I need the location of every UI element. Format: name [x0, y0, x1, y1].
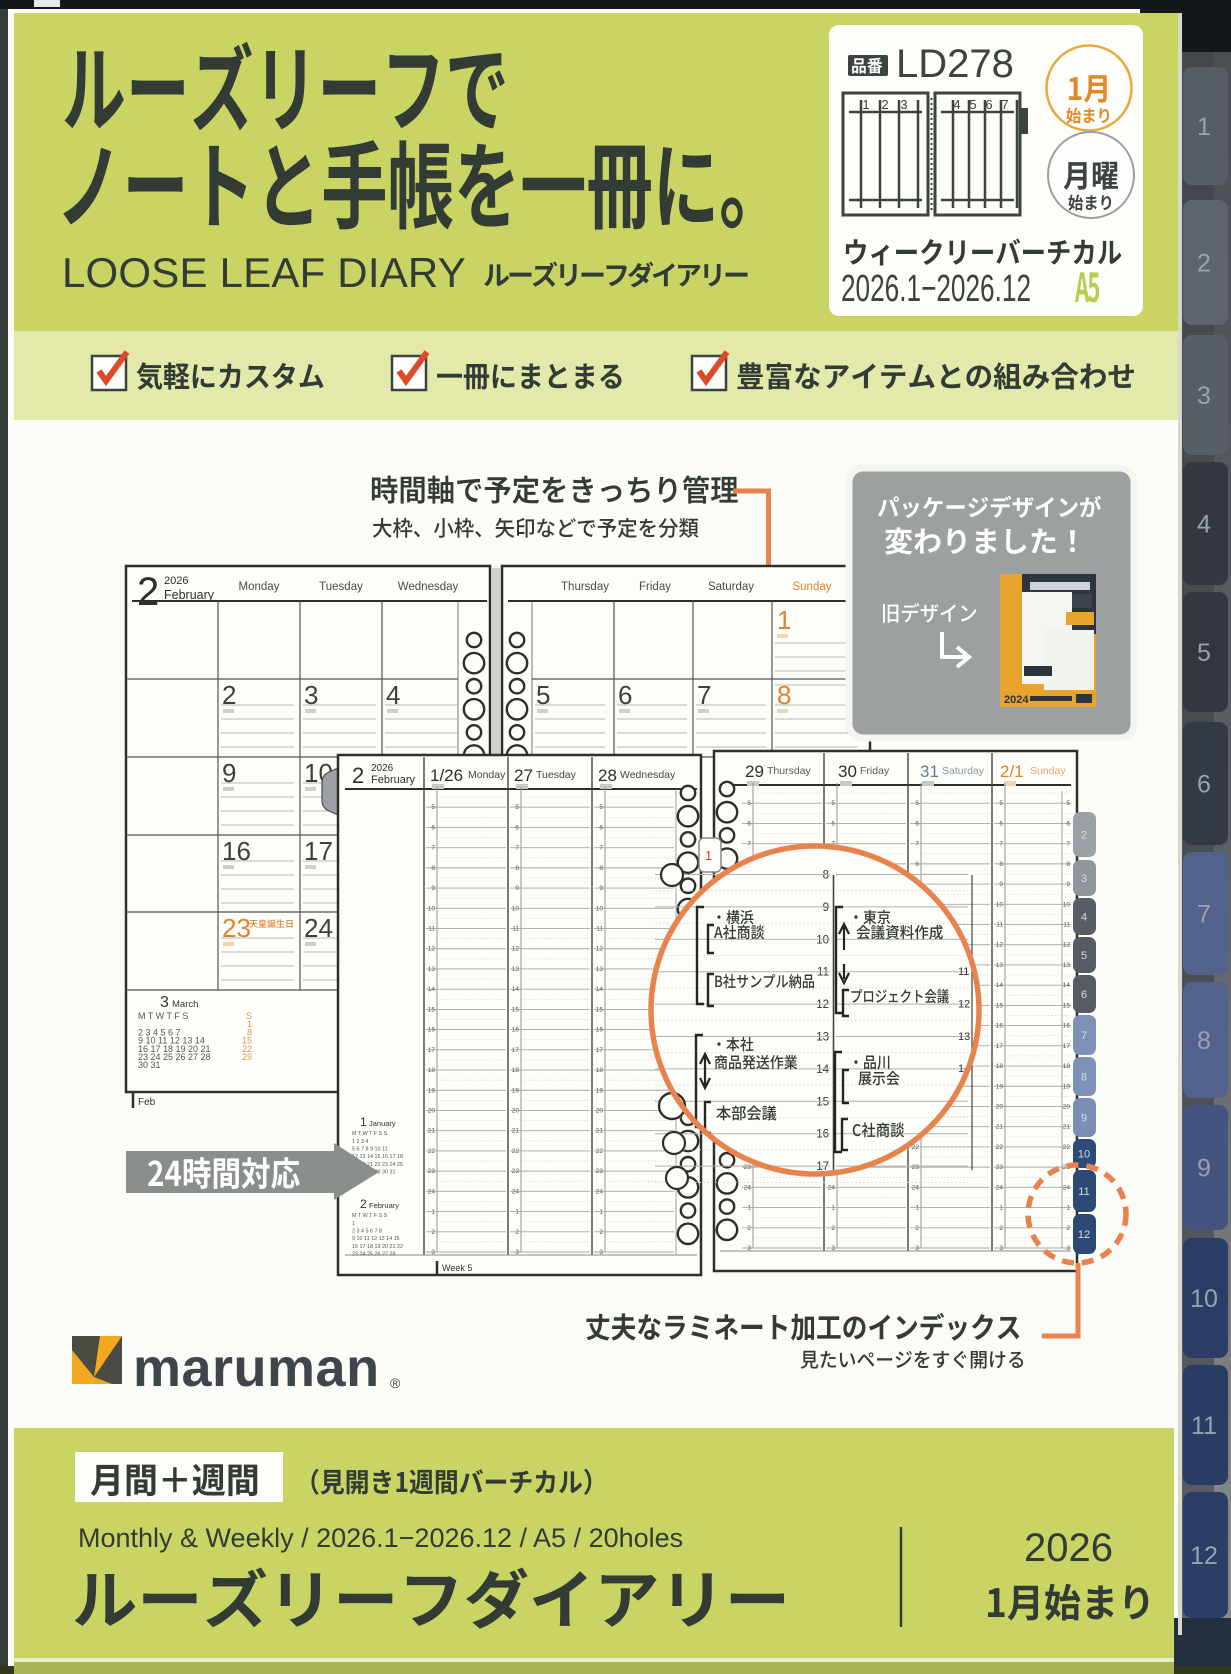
- svg-text:2: 2: [360, 1197, 367, 1211]
- svg-text:20: 20: [512, 1107, 520, 1114]
- svg-text:Sunday: Sunday: [1030, 765, 1066, 777]
- svg-text:5: 5: [999, 800, 1003, 807]
- svg-text:2: 2: [915, 1225, 919, 1232]
- svg-text:1: 1: [777, 605, 791, 635]
- svg-text:7: 7: [515, 845, 519, 852]
- svg-text:29: 29: [745, 762, 764, 781]
- svg-text:29: 29: [242, 1052, 252, 1062]
- svg-text:11: 11: [996, 922, 1003, 929]
- svg-text:21: 21: [596, 1128, 604, 1135]
- svg-text:9: 9: [599, 885, 603, 892]
- svg-text:10: 10: [1190, 1285, 1218, 1313]
- svg-text:13: 13: [596, 966, 604, 973]
- svg-text:13: 13: [512, 966, 520, 973]
- svg-text:7: 7: [747, 841, 751, 848]
- svg-text:22: 22: [1063, 1144, 1071, 1151]
- svg-text:8: 8: [599, 865, 603, 872]
- svg-text:2: 2: [1066, 1225, 1070, 1232]
- svg-text:5: 5: [1066, 800, 1070, 807]
- svg-text:3: 3: [515, 1249, 519, 1256]
- svg-text:11: 11: [428, 926, 435, 933]
- svg-text:24: 24: [428, 1188, 436, 1195]
- svg-text:11: 11: [817, 967, 829, 979]
- svg-text:Wednesday: Wednesday: [620, 769, 676, 781]
- svg-text:15: 15: [428, 1006, 436, 1013]
- svg-text:Monthly & Weekly / 2026.1−2026: Monthly & Weekly / 2026.1−2026.12 / A5 /…: [78, 1523, 683, 1553]
- svg-text:10: 10: [1078, 1149, 1090, 1161]
- svg-text:®: ®: [390, 1375, 401, 1391]
- svg-text:18: 18: [596, 1067, 604, 1074]
- svg-text:11: 11: [958, 966, 969, 978]
- svg-text:1 2 3 4: 1 2 3 4: [352, 1139, 369, 1145]
- svg-text:21: 21: [512, 1128, 520, 1135]
- svg-text:22: 22: [428, 1148, 436, 1155]
- svg-text:February: February: [369, 1201, 399, 1210]
- svg-text:23: 23: [744, 1164, 752, 1171]
- svg-text:6: 6: [1066, 820, 1070, 827]
- svg-text:30 31: 30 31: [138, 1060, 161, 1070]
- svg-text:24: 24: [596, 1188, 604, 1195]
- svg-text:2 3 4 5 6 7 8: 2 3 4 5 6 7 8: [352, 1229, 382, 1235]
- svg-text:22: 22: [596, 1148, 604, 1155]
- svg-text:4: 4: [1081, 912, 1087, 924]
- svg-text:6: 6: [985, 97, 992, 112]
- svg-text:M T W T F S: M T W T F S: [138, 1011, 188, 1021]
- svg-text:Thursday: Thursday: [561, 581, 609, 593]
- svg-text:LOOSE LEAF DIARY: LOOSE LEAF DIARY: [62, 249, 466, 296]
- svg-text:2: 2: [1197, 250, 1211, 278]
- svg-text:3: 3: [900, 97, 907, 112]
- svg-text:2: 2: [431, 1229, 435, 1236]
- svg-text:3: 3: [599, 1249, 603, 1256]
- svg-text:2/1: 2/1: [1000, 762, 1024, 781]
- svg-text:1: 1: [831, 1205, 835, 1212]
- svg-text:15: 15: [816, 1096, 829, 1108]
- svg-text:Saturday: Saturday: [942, 765, 985, 777]
- svg-text:21: 21: [996, 1124, 1004, 1131]
- svg-text:2026: 2026: [1024, 1526, 1113, 1570]
- svg-text:23: 23: [912, 1164, 920, 1171]
- svg-text:10: 10: [816, 934, 829, 946]
- svg-text:12: 12: [958, 998, 970, 1010]
- svg-text:Monday: Monday: [239, 581, 280, 593]
- svg-text:2: 2: [999, 1225, 1003, 1232]
- svg-text:2026.1−2026.12: 2026.1−2026.12: [841, 268, 1031, 310]
- svg-text:16: 16: [1063, 1023, 1071, 1030]
- svg-text:7: 7: [599, 845, 603, 852]
- svg-text:2: 2: [1081, 830, 1087, 842]
- svg-text:24: 24: [1063, 1184, 1071, 1191]
- svg-text:6: 6: [431, 824, 435, 831]
- svg-text:8: 8: [515, 865, 519, 872]
- svg-text:9: 9: [431, 885, 435, 892]
- svg-text:16: 16: [816, 1129, 829, 1141]
- svg-text:15: 15: [996, 1002, 1004, 1009]
- svg-text:7: 7: [1001, 97, 1008, 112]
- svg-text:2026: 2026: [164, 575, 188, 587]
- svg-text:13: 13: [428, 966, 436, 973]
- svg-text:Friday: Friday: [860, 765, 890, 777]
- svg-text:23: 23: [512, 1168, 520, 1175]
- svg-text:Tuesday: Tuesday: [536, 769, 577, 781]
- svg-text:12: 12: [512, 946, 520, 953]
- svg-text:27: 27: [514, 766, 533, 785]
- svg-text:14: 14: [596, 986, 604, 993]
- svg-text:30: 30: [838, 762, 857, 781]
- svg-text:Monday: Monday: [468, 769, 506, 781]
- svg-text:18: 18: [428, 1067, 436, 1074]
- svg-text:20: 20: [428, 1107, 436, 1114]
- svg-text:January: January: [369, 1119, 396, 1128]
- svg-text:10: 10: [512, 905, 520, 912]
- svg-text:6: 6: [915, 820, 919, 827]
- svg-text:maruman: maruman: [133, 1338, 380, 1398]
- svg-text:8: 8: [915, 861, 919, 868]
- svg-text:11: 11: [512, 926, 519, 933]
- svg-text:11: 11: [596, 926, 603, 933]
- svg-text:3: 3: [1066, 1245, 1070, 1252]
- svg-text:5: 5: [1197, 639, 1211, 667]
- svg-text:3: 3: [1197, 382, 1211, 410]
- svg-text:14: 14: [816, 1064, 829, 1076]
- svg-text:15: 15: [596, 1006, 604, 1013]
- svg-text:12: 12: [428, 946, 436, 953]
- svg-text:8: 8: [999, 861, 1003, 868]
- svg-text:M T W T F S S: M T W T F S S: [352, 1131, 388, 1137]
- svg-text:16: 16: [996, 1023, 1004, 1030]
- svg-text:7: 7: [431, 845, 435, 852]
- svg-text:9 10 11 12 13 14 15: 9 10 11 12 13 14 15: [352, 1236, 400, 1242]
- svg-text:13: 13: [816, 1032, 829, 1044]
- svg-text:2026: 2026: [371, 763, 394, 774]
- svg-text:19: 19: [996, 1083, 1004, 1090]
- svg-text:8: 8: [1197, 1027, 1211, 1055]
- svg-text:5: 5: [599, 804, 603, 811]
- svg-text:2: 2: [599, 1229, 603, 1236]
- svg-text:14: 14: [428, 986, 436, 993]
- svg-text:9: 9: [1081, 1113, 1087, 1125]
- svg-text:1: 1: [360, 1115, 367, 1129]
- svg-text:Tuesday: Tuesday: [319, 581, 363, 593]
- svg-text:5: 5: [747, 800, 751, 807]
- svg-text:5 6 7 8 9 10 11: 5 6 7 8 9 10 11: [352, 1147, 388, 1153]
- svg-text:20: 20: [596, 1107, 604, 1114]
- svg-text:3: 3: [160, 994, 169, 1011]
- svg-text:M T W T F S S: M T W T F S S: [352, 1213, 388, 1219]
- svg-text:19: 19: [596, 1087, 604, 1094]
- svg-text:23 24 25 26 27 28: 23 24 25 26 27 28: [352, 1251, 395, 1257]
- svg-text:19: 19: [428, 1087, 436, 1094]
- svg-text:2: 2: [747, 1225, 751, 1232]
- svg-text:18: 18: [512, 1067, 520, 1074]
- svg-text:12: 12: [1063, 942, 1071, 949]
- svg-text:16: 16: [428, 1027, 436, 1034]
- svg-text:8: 8: [1081, 1072, 1087, 1084]
- svg-text:11: 11: [1078, 1186, 1089, 1198]
- svg-text:1: 1: [515, 1209, 519, 1216]
- svg-text:17: 17: [428, 1047, 436, 1054]
- svg-text:1: 1: [352, 1221, 355, 1227]
- svg-text:2: 2: [831, 1225, 835, 1232]
- svg-text:12: 12: [1078, 1229, 1090, 1241]
- svg-text:6: 6: [515, 824, 519, 831]
- svg-text:24: 24: [996, 1184, 1004, 1191]
- svg-text:19: 19: [512, 1087, 520, 1094]
- svg-text:22: 22: [512, 1148, 520, 1155]
- svg-text:February: February: [371, 774, 416, 786]
- svg-text:1: 1: [915, 1205, 919, 1212]
- svg-text:10: 10: [996, 901, 1004, 908]
- svg-text:1: 1: [1066, 1205, 1070, 1212]
- svg-text:23: 23: [996, 1164, 1004, 1171]
- svg-text:14: 14: [996, 982, 1004, 989]
- svg-text:5: 5: [969, 97, 976, 112]
- svg-text:20: 20: [996, 1103, 1004, 1110]
- svg-text:7: 7: [915, 841, 919, 848]
- svg-text:11: 11: [1191, 1412, 1217, 1440]
- svg-text:16 17 18 19 20 21 22: 16 17 18 19 20 21 22: [352, 1244, 403, 1250]
- svg-text:13: 13: [958, 1031, 970, 1043]
- svg-text:9: 9: [515, 885, 519, 892]
- svg-text:8: 8: [431, 865, 435, 872]
- svg-text:20: 20: [1063, 1103, 1071, 1110]
- svg-text:17: 17: [1063, 1043, 1071, 1050]
- svg-text:1: 1: [1197, 113, 1211, 141]
- svg-text:6: 6: [999, 820, 1003, 827]
- svg-text:3: 3: [831, 1245, 835, 1252]
- svg-text:12: 12: [816, 999, 829, 1011]
- svg-text:10: 10: [596, 905, 604, 912]
- svg-text:8: 8: [1066, 861, 1070, 868]
- svg-text:22: 22: [996, 1144, 1004, 1151]
- svg-text:15: 15: [1063, 1002, 1071, 1009]
- svg-text:LD278: LD278: [896, 42, 1014, 86]
- svg-text:5: 5: [431, 804, 435, 811]
- svg-text:7: 7: [1066, 841, 1070, 848]
- svg-text:24: 24: [912, 1184, 920, 1191]
- svg-text:1: 1: [431, 1209, 435, 1216]
- svg-text:5: 5: [831, 800, 835, 807]
- svg-text:Week 5: Week 5: [442, 1263, 472, 1273]
- svg-text:S: S: [246, 1011, 252, 1021]
- svg-text:6: 6: [599, 824, 603, 831]
- svg-text:1: 1: [862, 97, 869, 112]
- svg-text:23: 23: [596, 1168, 604, 1175]
- svg-text:8: 8: [823, 870, 829, 882]
- svg-text:Wednesday: Wednesday: [398, 581, 459, 593]
- svg-text:31: 31: [920, 762, 939, 781]
- svg-text:13: 13: [1063, 962, 1071, 969]
- svg-text:10: 10: [428, 905, 436, 912]
- svg-text:17: 17: [996, 1043, 1004, 1050]
- svg-text:1/26: 1/26: [430, 766, 463, 785]
- svg-text:14: 14: [512, 986, 520, 993]
- svg-text:6: 6: [831, 820, 835, 827]
- svg-text:12: 12: [596, 946, 604, 953]
- svg-text:5: 5: [515, 804, 519, 811]
- svg-text:Sunday: Sunday: [792, 581, 831, 593]
- svg-text:18: 18: [1063, 1063, 1071, 1070]
- svg-text:Friday: Friday: [639, 581, 671, 593]
- svg-text:2: 2: [515, 1229, 519, 1236]
- svg-text:1: 1: [999, 1205, 1003, 1212]
- svg-text:16: 16: [512, 1027, 520, 1034]
- svg-text:3: 3: [1081, 873, 1087, 885]
- svg-text:16: 16: [596, 1027, 604, 1034]
- svg-text:14: 14: [1063, 982, 1071, 989]
- svg-text:28: 28: [598, 766, 617, 785]
- svg-text:19: 19: [1063, 1083, 1071, 1090]
- svg-text:21: 21: [1063, 1124, 1071, 1131]
- svg-text:24: 24: [744, 1184, 752, 1191]
- svg-text:March: March: [172, 999, 198, 1010]
- svg-text:Feb: Feb: [138, 1097, 156, 1108]
- svg-text:21: 21: [428, 1128, 436, 1135]
- svg-text:17: 17: [512, 1047, 520, 1054]
- svg-text:15: 15: [512, 1006, 520, 1013]
- svg-text:12: 12: [996, 942, 1004, 949]
- svg-text:12: 12: [1190, 1542, 1218, 1570]
- svg-text:7: 7: [1081, 1030, 1087, 1042]
- svg-text:23: 23: [428, 1168, 436, 1175]
- svg-text:2: 2: [137, 570, 159, 614]
- svg-text:17: 17: [596, 1047, 604, 1054]
- svg-text:12 13 14 15 16 17 18: 12 13 14 15 16 17 18: [352, 1154, 403, 1160]
- svg-text:9: 9: [999, 881, 1003, 888]
- svg-text:6: 6: [747, 820, 751, 827]
- svg-text:11: 11: [1063, 922, 1070, 929]
- svg-text:2: 2: [881, 97, 888, 112]
- svg-text:4: 4: [953, 97, 960, 112]
- svg-text:2: 2: [352, 763, 364, 788]
- svg-text:24: 24: [512, 1188, 520, 1195]
- svg-text:3: 3: [747, 1245, 751, 1252]
- svg-text:5: 5: [915, 800, 919, 807]
- svg-text:3: 3: [915, 1245, 919, 1252]
- svg-text:6: 6: [1081, 989, 1087, 1001]
- svg-text:9: 9: [1066, 881, 1070, 888]
- svg-text:5: 5: [1081, 950, 1087, 962]
- svg-text:3: 3: [431, 1249, 435, 1256]
- svg-text:10: 10: [1063, 901, 1071, 908]
- svg-text:1: 1: [705, 848, 712, 863]
- svg-text:1: 1: [747, 1205, 751, 1212]
- svg-text:24: 24: [828, 1184, 836, 1191]
- svg-text:13: 13: [996, 962, 1004, 969]
- svg-text:18: 18: [996, 1063, 1004, 1070]
- svg-text:6: 6: [1197, 771, 1211, 799]
- svg-text:Saturday: Saturday: [708, 581, 754, 593]
- svg-text:3: 3: [999, 1245, 1003, 1252]
- svg-text:Thursday: Thursday: [767, 765, 812, 777]
- svg-text:9: 9: [823, 902, 829, 914]
- svg-text:2024: 2024: [1004, 694, 1029, 706]
- svg-text:4: 4: [1197, 511, 1211, 539]
- svg-text:1: 1: [599, 1209, 603, 1216]
- svg-text:February: February: [164, 588, 215, 602]
- svg-text:7: 7: [1197, 901, 1211, 929]
- svg-text:9: 9: [1197, 1155, 1211, 1183]
- svg-text:7: 7: [999, 841, 1003, 848]
